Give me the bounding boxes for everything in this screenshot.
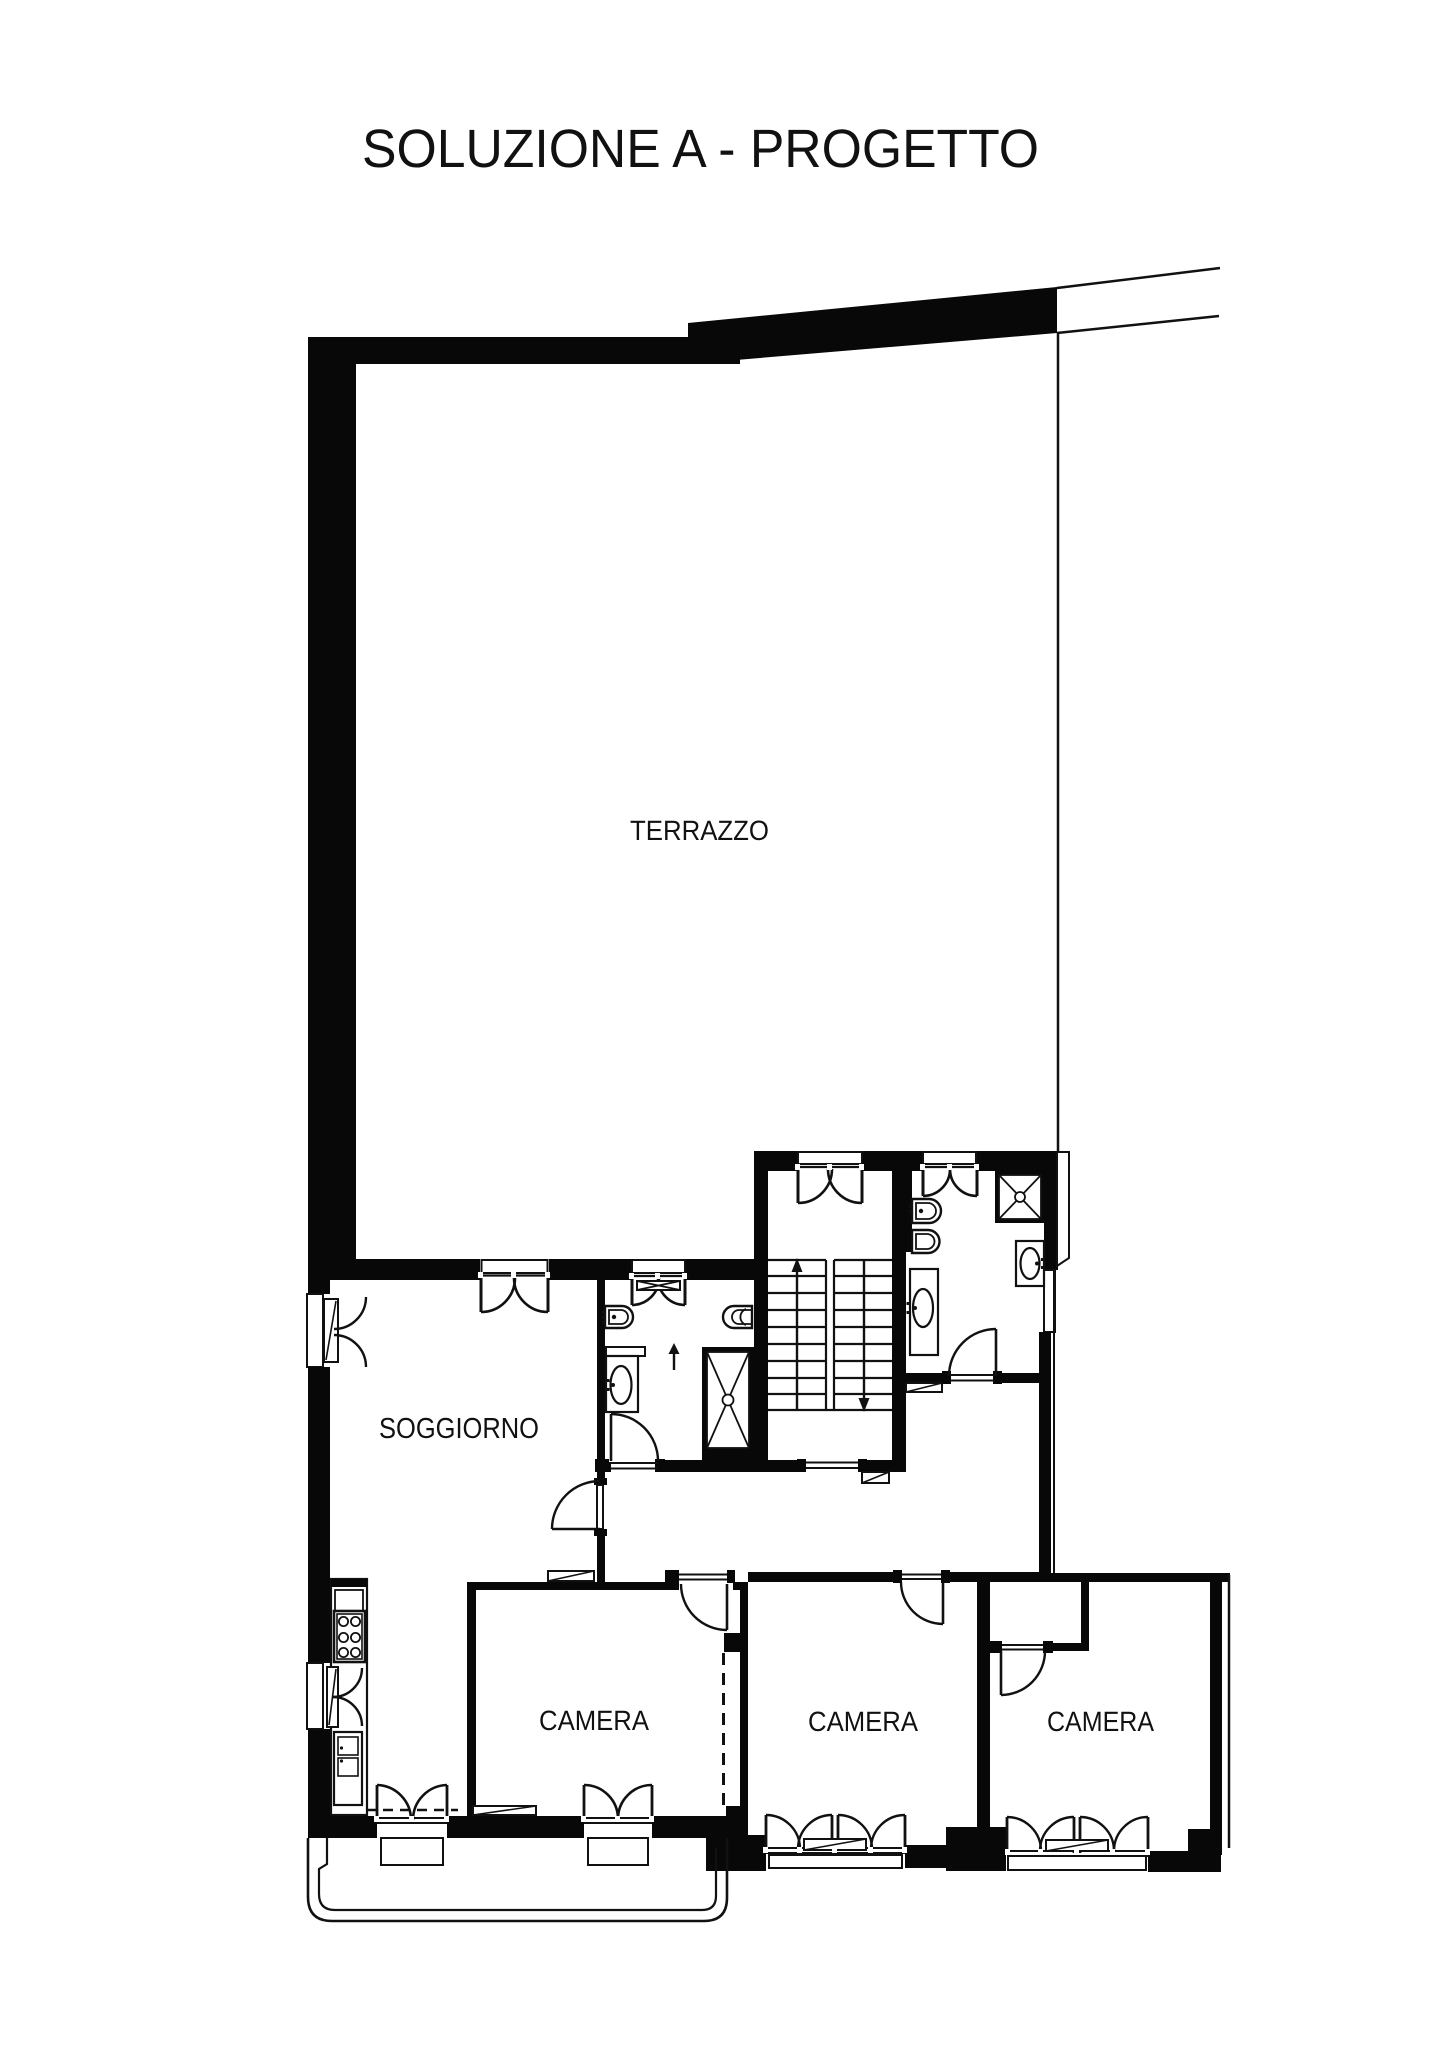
- svg-text:CAMERA: CAMERA: [808, 1706, 918, 1737]
- svg-text:CAMERA: CAMERA: [539, 1705, 649, 1736]
- svg-text:SOLUZIONE A - PROGETTO: SOLUZIONE A - PROGETTO: [362, 119, 1039, 179]
- svg-text:SOGGIORNO: SOGGIORNO: [379, 1413, 539, 1445]
- svg-text:CAMERA: CAMERA: [1047, 1706, 1154, 1737]
- svg-text:TERRAZZO: TERRAZZO: [630, 815, 769, 846]
